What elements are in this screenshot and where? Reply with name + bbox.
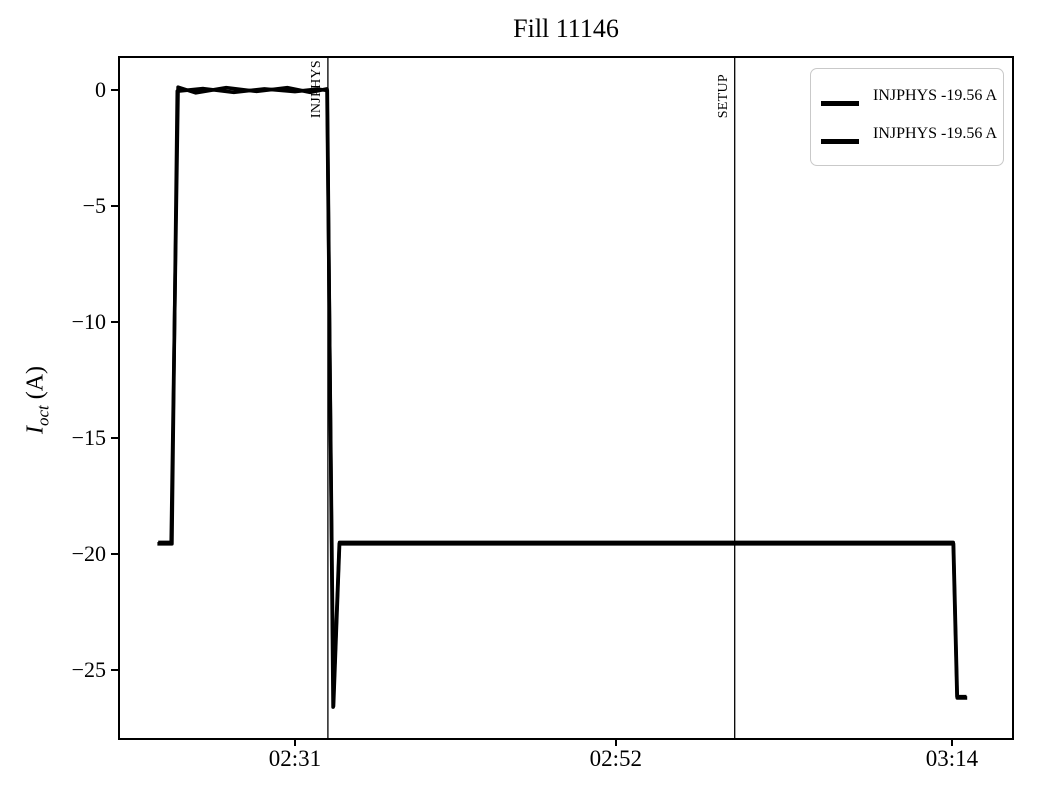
legend-entry-label: INJPHYS -19.56 A	[873, 87, 997, 105]
y-tick-mark	[111, 553, 120, 555]
legend-line-sample	[821, 139, 859, 144]
x-tick-mark	[951, 738, 953, 746]
y-tick-label: −5	[36, 194, 106, 218]
legend: INJPHYS -19.56 A INJPHYS -19.56 A	[810, 68, 1004, 166]
matplotlib-figure: Fill 11146 Ioct (A) INJPHYS -19.56 A INJ…	[0, 0, 1040, 800]
event-label-setup: SETUP	[715, 74, 732, 118]
series-line-1	[158, 87, 966, 706]
event-label-injphys: INJPHYS	[308, 60, 325, 118]
y-tick-label: −15	[36, 426, 106, 450]
legend-entry-label: INJPHYS -19.56 A	[873, 125, 997, 143]
y-tick-mark	[111, 89, 120, 91]
y-tick-mark	[111, 437, 120, 439]
y-tick-label: −20	[36, 542, 106, 566]
y-tick-label: −10	[36, 310, 106, 334]
legend-line-sample	[821, 101, 859, 106]
plot-area: INJPHYS -19.56 A INJPHYS -19.56 A	[118, 56, 1014, 740]
x-tick-mark	[615, 738, 617, 746]
x-tick-label: 03:14	[907, 746, 997, 772]
legend-entry: INJPHYS -19.56 A	[821, 115, 991, 153]
y-axis-label-subscript: oct	[33, 405, 52, 426]
y-tick-mark	[111, 321, 120, 323]
x-tick-label: 02:31	[250, 746, 340, 772]
x-tick-label: 02:52	[571, 746, 661, 772]
y-tick-label: −25	[36, 658, 106, 682]
y-tick-label: 0	[36, 78, 106, 102]
legend-entry: INJPHYS -19.56 A	[821, 77, 991, 115]
series-line-0	[157, 89, 967, 708]
chart-title: Fill 11146	[120, 14, 1012, 44]
y-tick-mark	[111, 205, 120, 207]
y-axis-label-unit: (A)	[23, 366, 49, 405]
x-tick-mark	[294, 738, 296, 746]
y-tick-mark	[111, 669, 120, 671]
